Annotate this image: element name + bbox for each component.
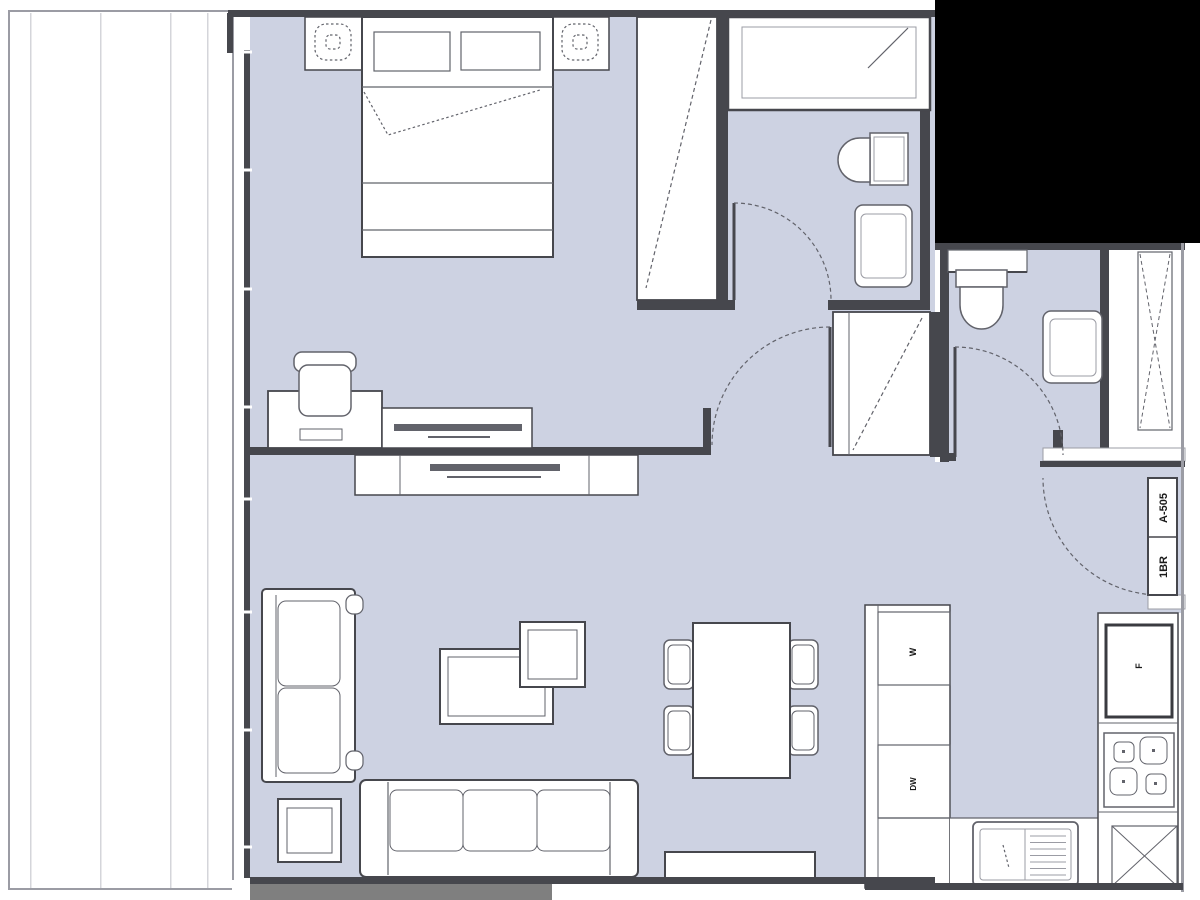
entry-side-stub [1148,595,1185,609]
hall-wardrobe [833,312,930,455]
toilet-tank [870,133,908,185]
unit-number-label: A-505 [1158,493,1170,523]
bed [362,17,553,257]
shower [728,17,930,110]
bathroom-1-bottom-wall-east [828,300,930,310]
toilet-2-bowl [960,287,1003,329]
corridor-closet [1138,252,1172,430]
left-window-wall [244,50,250,878]
unit-type-label: 1BR [1158,556,1170,578]
bathroom-2-sink [1043,311,1102,383]
tv-living [430,464,560,471]
refrigerator-label: F [1134,663,1144,669]
parapet-wall [250,884,552,900]
tv-bedroom [394,424,522,431]
balcony-deck-line [207,13,209,888]
right-edge-wall [1181,243,1184,892]
nightstand-right [553,17,609,70]
dishwasher-label: DW [909,777,918,791]
armchair-arm [346,751,363,770]
kitchen-aisle-floor [935,613,1098,818]
tv-console-living [355,455,638,495]
linen-closet [1138,252,1172,430]
bedroom-door-jamb [703,408,711,455]
nightstand-left [305,17,362,70]
ottoman-table [520,622,585,687]
balcony-left-edge [8,10,10,890]
balcony-deck-line [100,13,102,888]
balcony-deck-line [30,13,32,888]
balcony [8,10,234,890]
corner-step-wall [227,13,233,53]
toilet-2-tank [956,270,1007,287]
sofa [360,780,638,877]
floor-plan: A-505 1BR [0,0,1200,900]
bottom-wall-left [250,877,935,884]
wardrobe-right-wall [930,312,940,457]
burner-dot [1152,749,1155,752]
entry-threshold [1043,448,1185,461]
washer-label: W [908,647,918,656]
masked-region [935,0,1200,243]
dining-table [693,623,790,778]
vanity-counter [948,250,1027,272]
balcony-top-edge [8,10,232,12]
bottom-wall-right [865,883,1183,890]
burner-dot [1122,750,1125,753]
bedroom-closet [637,17,717,300]
balcony-bottom-edge [8,888,232,890]
bathroom-sink [855,205,912,287]
bathroom-1-bottom-wall-west [637,300,735,310]
burner-dot [1122,780,1125,783]
refrigerator-box [1106,625,1172,717]
armchair-arm [346,595,363,614]
desk-chair [299,365,351,416]
bathroom-2-left-wall [940,243,949,462]
burner-dot [1154,782,1157,785]
balcony-railing-line [232,13,234,880]
balcony-deck-line [170,13,172,888]
entry-wall [1040,461,1185,467]
closet-bathroom-wall [717,17,728,310]
top-right-wall [935,243,1185,250]
